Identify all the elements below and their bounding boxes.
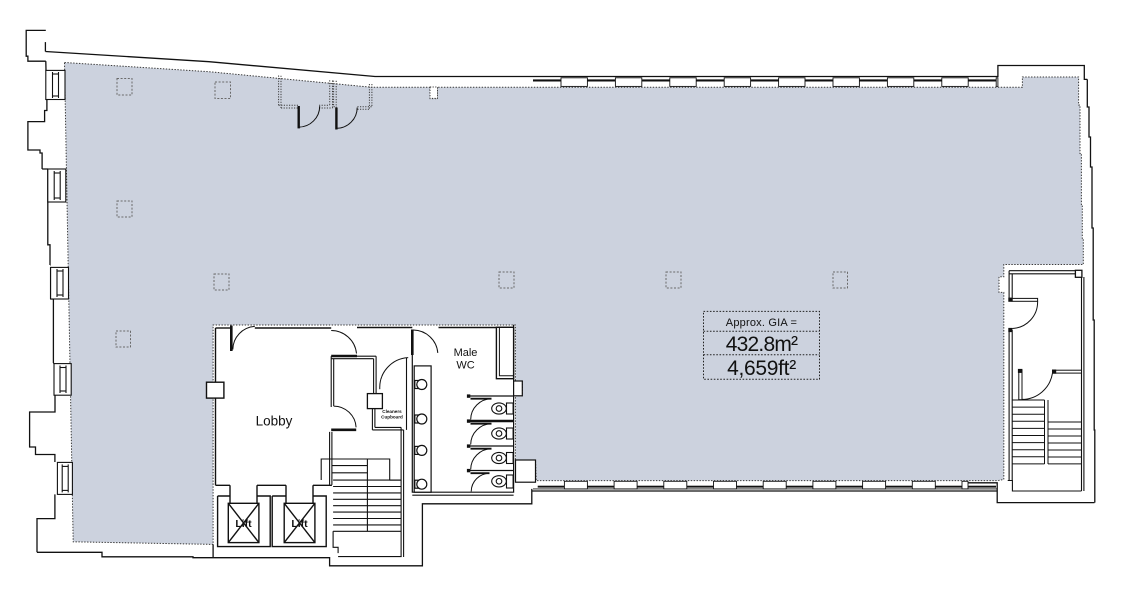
svg-text:Male: Male	[454, 347, 478, 359]
svg-text:Approx. GIA =: Approx. GIA =	[726, 317, 797, 329]
svg-text:432.8m²: 432.8m²	[726, 333, 798, 356]
svg-text:4,659ft²: 4,659ft²	[727, 357, 796, 380]
svg-text:WC: WC	[456, 360, 474, 372]
svg-text:Lift: Lift	[291, 518, 308, 530]
svg-text:Lift: Lift	[235, 518, 252, 530]
svg-text:Cupboard: Cupboard	[381, 415, 403, 420]
svg-text:Cleaners: Cleaners	[382, 409, 402, 414]
svg-text:Lobby: Lobby	[256, 414, 293, 429]
